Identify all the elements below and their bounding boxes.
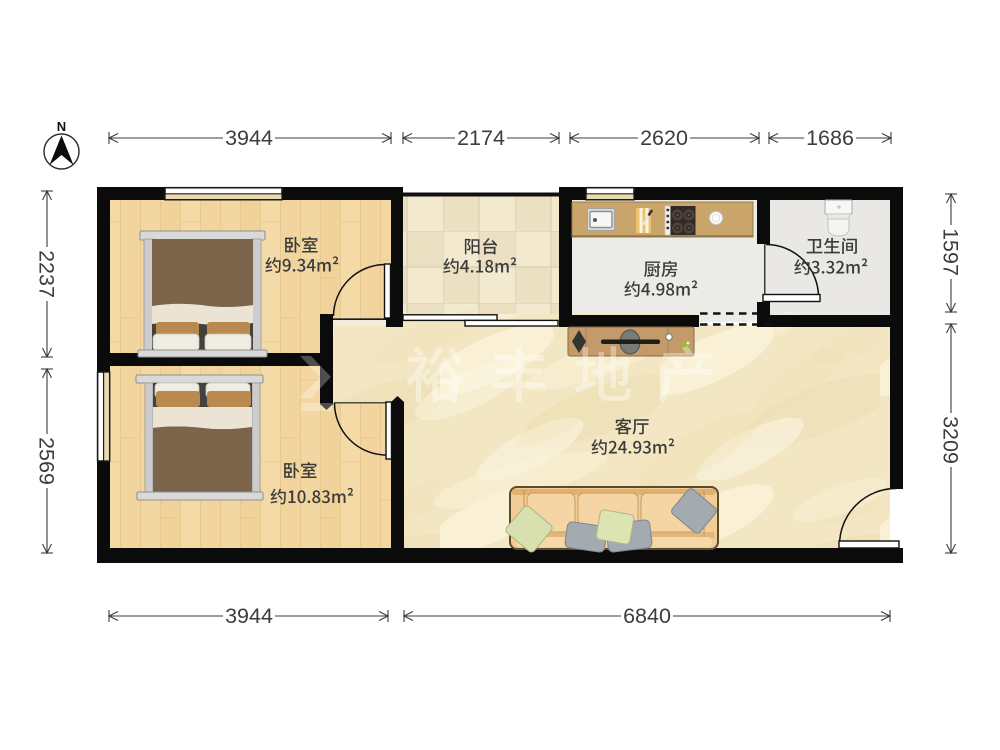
svg-text:3944: 3944 — [225, 126, 273, 150]
svg-text:2569: 2569 — [35, 437, 59, 485]
svg-text:3944: 3944 — [225, 604, 273, 628]
svg-text:2237: 2237 — [35, 250, 59, 298]
svg-text:N: N — [57, 119, 66, 134]
svg-text:3209: 3209 — [939, 416, 963, 464]
svg-text:1597: 1597 — [939, 228, 963, 276]
svg-text:1686: 1686 — [806, 126, 854, 150]
svg-text:6840: 6840 — [623, 604, 671, 628]
svg-text:2620: 2620 — [640, 126, 688, 150]
svg-text:2174: 2174 — [457, 126, 505, 150]
